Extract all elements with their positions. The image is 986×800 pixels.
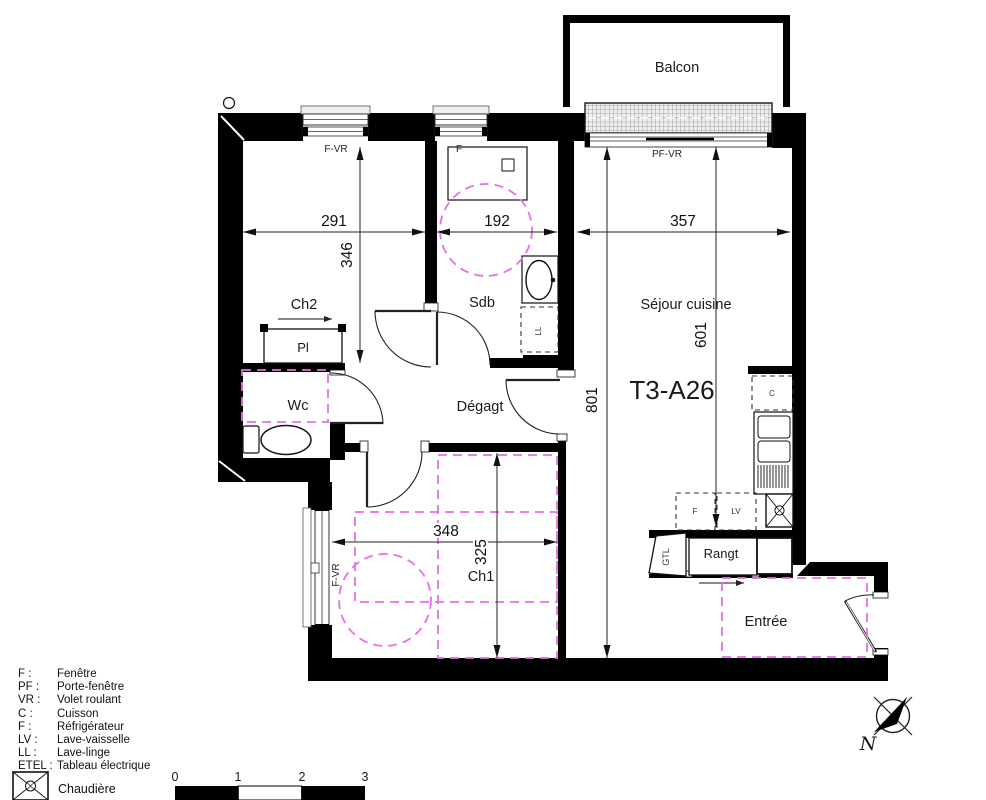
scale-segment [175, 786, 238, 800]
scale-bar: 0 1 2 3 [172, 770, 369, 800]
legend-abbr: VR : [18, 694, 40, 706]
scale-3: 3 [362, 770, 369, 784]
dim-601: 601 [693, 322, 710, 348]
wall-step [218, 458, 330, 482]
label-fvr-ch1: F-VR [331, 563, 342, 586]
scale-0: 0 [172, 770, 179, 784]
room-balcon: Balcon [655, 60, 699, 76]
toilet-tank [243, 426, 259, 453]
wall-kitchen-stub [748, 366, 792, 374]
scale-1: 1 [235, 770, 242, 784]
dim-325: 325 [473, 539, 490, 565]
door-jamb [557, 370, 575, 377]
balcony-wall [563, 15, 570, 107]
door-jamb [557, 434, 567, 441]
wall-segment [874, 576, 888, 594]
label-gtl: GTL [661, 548, 671, 566]
apartment-id: T3-A26 [629, 375, 714, 405]
wall-segment [330, 423, 345, 460]
dim-346: 346 [339, 242, 356, 268]
window-pfvr-balcony [585, 103, 772, 147]
legend-label: Réfrigérateur [57, 721, 124, 733]
dim-192: 192 [484, 213, 510, 230]
window-fvr-ch1 [303, 506, 329, 629]
label-lave-vaisselle: LV [731, 507, 741, 516]
door-arc-entree [845, 595, 874, 601]
legend-abbr: LL : [18, 747, 37, 759]
legend: F : Fenêtre PF : Porte-fenêtre VR : Vole… [13, 668, 150, 800]
floor-plan: 291 192 357 346 801 601 348 325 Balcon C… [0, 0, 986, 800]
north-label: N [859, 733, 878, 755]
legend-label: Tableau électrique [57, 760, 150, 772]
sink-tap [551, 278, 556, 283]
wall-left [218, 113, 243, 461]
room-wc: Wc [288, 398, 309, 414]
legend-abbr: F : [18, 721, 31, 733]
niche [757, 538, 792, 574]
boiler [766, 494, 793, 527]
door-arc-ch1 [367, 452, 422, 507]
boiler-legend-icon [13, 772, 48, 800]
sink-basin [526, 261, 552, 300]
shower-faucet [502, 159, 514, 171]
legend-label: Lave-vaisselle [57, 734, 130, 746]
window-f-sdb [433, 106, 489, 136]
legend-abbr: ETEL : [18, 760, 53, 772]
zone-circle-ch1 [339, 554, 431, 646]
scale-segment [238, 786, 301, 800]
wall-ch2-sdb [425, 141, 437, 311]
label-f-top: F [456, 144, 462, 155]
window-fvr-ch2 [301, 106, 370, 136]
closet-mark [260, 324, 268, 332]
room-pl: Pl [297, 340, 309, 355]
toilet-bowl [261, 426, 311, 455]
wall-entree-top [797, 562, 888, 576]
room-degagt: Dégagt [457, 399, 504, 415]
balcony-wall [783, 15, 790, 107]
wall-segment [308, 625, 332, 661]
wall-segment [487, 113, 585, 141]
kitchen-sink-basin [758, 441, 790, 462]
wall-segment [490, 358, 523, 368]
legend-abbr: PF : [18, 681, 39, 693]
scale-segment [302, 786, 365, 800]
label-fvr-top: F-VR [324, 144, 347, 155]
door-arc-ch2 [375, 311, 431, 367]
door-jamb [873, 592, 888, 598]
legend-label: Volet roulant [57, 694, 122, 706]
wall-segment [308, 482, 332, 510]
door-arc-sdb [437, 312, 490, 365]
balcony-wall [563, 15, 790, 23]
room-rangt: Rangt [704, 546, 739, 561]
wall-marker-circle [224, 98, 235, 109]
door-jamb [424, 303, 438, 311]
legend-label: Fenêtre [57, 668, 97, 680]
wall-bottom [308, 658, 888, 681]
label-lave-linge: LL [534, 326, 543, 335]
zone-wc [242, 370, 328, 422]
door-leaf-entree-inner [846, 602, 875, 651]
wall-sdb-right [558, 141, 574, 375]
room-ch1: Ch1 [468, 569, 495, 585]
wall-segment [523, 355, 560, 368]
legend-abbr: F : [18, 668, 31, 680]
room-entree: Entrée [745, 614, 788, 630]
legend-label: Cuisson [57, 708, 99, 720]
wall-right [792, 141, 806, 565]
door-jamb [421, 441, 429, 452]
legend-chaudiere: Chaudière [58, 782, 116, 796]
scale-2: 2 [299, 770, 306, 784]
dim-291: 291 [321, 213, 347, 230]
legend-abbr: LV : [18, 734, 38, 746]
label-cuisson: C [769, 389, 775, 398]
room-ch2: Ch2 [291, 297, 318, 313]
closet-mark [338, 324, 346, 332]
legend-label: Porte-fenêtre [57, 681, 124, 693]
dim-357: 357 [670, 213, 696, 230]
north-compass: N [859, 697, 912, 755]
wall-segment [368, 113, 435, 141]
kitchen-sink-basin [758, 416, 790, 438]
wall-ch1-right [558, 434, 566, 658]
label-refrigerateur: F [693, 507, 698, 516]
room-sejour: Séjour cuisine [640, 297, 731, 313]
legend-label: Lave-linge [57, 747, 110, 759]
door-arc-wc [330, 373, 383, 424]
door-jamb [360, 441, 368, 452]
door-arc-sejour [506, 380, 560, 434]
legend-abbr: C : [18, 708, 33, 720]
wall-ch1-top [422, 443, 560, 452]
dim-348: 348 [433, 523, 459, 540]
room-sdb: Sdb [469, 295, 495, 311]
label-pfvr: PF-VR [652, 149, 682, 160]
dim-801: 801 [584, 387, 601, 413]
